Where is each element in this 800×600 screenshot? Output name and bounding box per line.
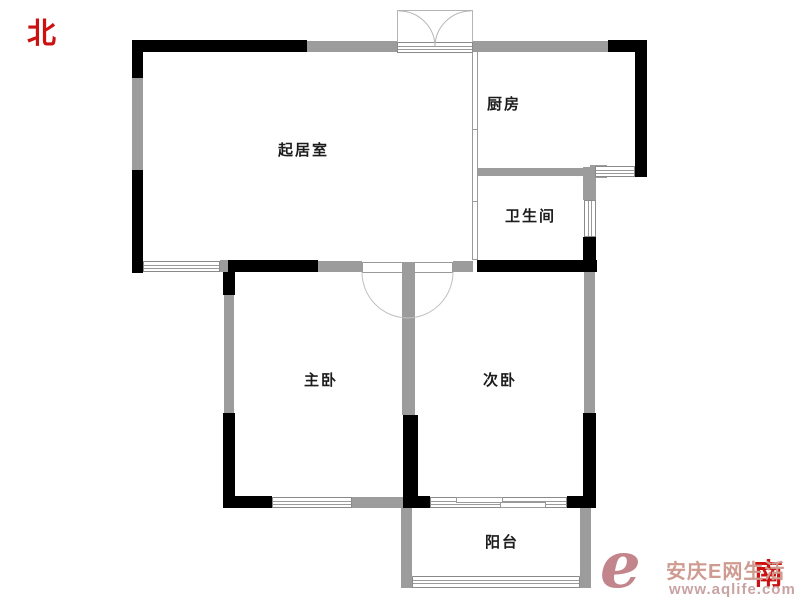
watermark-brand-text: 安庆E网生活	[666, 555, 785, 584]
door-center-post	[403, 262, 414, 273]
wall-top-gray-left	[307, 41, 397, 52]
watermark-logo-icon: e	[600, 534, 641, 598]
wall-kitchen-right	[635, 40, 647, 177]
wall-balcony-right	[580, 508, 591, 588]
wall-master-bottom-gray	[352, 497, 403, 508]
wall-left-upper-black	[132, 40, 143, 78]
partition-joint	[473, 129, 477, 130]
entry-door-threshold	[397, 42, 473, 53]
wall-second-right-black	[583, 413, 596, 508]
floor-plan: 起居室 厨房 卫生间 主卧 次卧 阳台 北 南 e 安庆E网生活 www.aql…	[0, 0, 800, 600]
partition-living-kitchen	[472, 51, 478, 260]
room-label-kitchen: 厨房	[487, 93, 521, 114]
partition-joint	[473, 201, 477, 202]
wall-left-gray	[132, 78, 143, 170]
wall-divider-gray	[402, 273, 415, 415]
wall-bedroom-left-bottom-black	[223, 413, 235, 508]
wall-balcony-left	[401, 508, 412, 588]
interior-door-leaf-right	[414, 262, 453, 273]
interior-door-leaf-left	[362, 262, 403, 273]
wall-second-right-gray	[584, 272, 595, 413]
sliding-door-panel-right	[500, 502, 546, 508]
wall-top-gray-right	[473, 41, 608, 52]
wall-top-black	[133, 40, 307, 52]
room-label-master-bedroom: 主卧	[304, 369, 338, 390]
wall-second-bottom-left-black	[403, 496, 430, 508]
wall-master-bottom-black	[223, 496, 272, 508]
wall-middle-gray-notch	[220, 260, 228, 272]
window-kitchen	[595, 166, 635, 177]
entry-door-frame	[397, 10, 473, 43]
watermark-website-url: www.aqlife.com	[669, 581, 796, 598]
wall-bathroom-bottom	[477, 260, 597, 272]
wall-middle-gray-left	[318, 261, 362, 272]
room-label-bathroom: 卫生间	[505, 205, 556, 226]
room-label-balcony: 阳台	[485, 531, 519, 552]
sliding-door-panel-left	[456, 497, 503, 503]
room-label-living: 起居室	[278, 139, 329, 160]
compass-north-label: 北	[27, 20, 56, 49]
room-label-second-bedroom: 次卧	[483, 369, 517, 390]
wall-bedroom-left-gray	[224, 295, 234, 413]
window-bathroom	[584, 200, 596, 237]
window-master-bedroom	[272, 497, 352, 508]
window-balcony	[412, 576, 580, 588]
door-swing-arcs	[0, 0, 800, 600]
wall-middle-gray-right	[453, 261, 473, 272]
wall-middle-black	[228, 260, 318, 272]
window-living-room	[143, 261, 220, 272]
wall-left-lower-black	[132, 170, 143, 273]
wall-bathroom-top	[478, 168, 592, 176]
wall-divider-black	[403, 415, 418, 508]
